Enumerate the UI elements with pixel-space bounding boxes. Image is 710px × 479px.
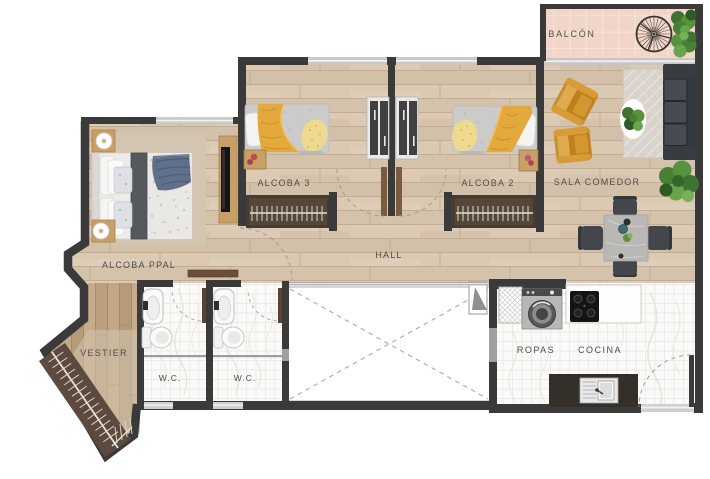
- svg-text:BALCÓN: BALCÓN: [548, 29, 595, 39]
- svg-text:ROPAS: ROPAS: [517, 345, 555, 355]
- svg-text:HALL: HALL: [375, 250, 402, 260]
- svg-text:COCINA: COCINA: [578, 345, 622, 355]
- svg-text:W.C.: W.C.: [234, 373, 256, 383]
- svg-text:SALA COMEDOR: SALA COMEDOR: [554, 177, 640, 187]
- svg-text:VESTIER: VESTIER: [80, 348, 128, 358]
- svg-text:ALCOBA 3: ALCOBA 3: [257, 178, 310, 188]
- svg-text:ALCOBA 2: ALCOBA 2: [461, 178, 514, 188]
- svg-text:ALCOBA PPAL: ALCOBA PPAL: [102, 260, 176, 270]
- svg-text:W.C.: W.C.: [159, 373, 181, 383]
